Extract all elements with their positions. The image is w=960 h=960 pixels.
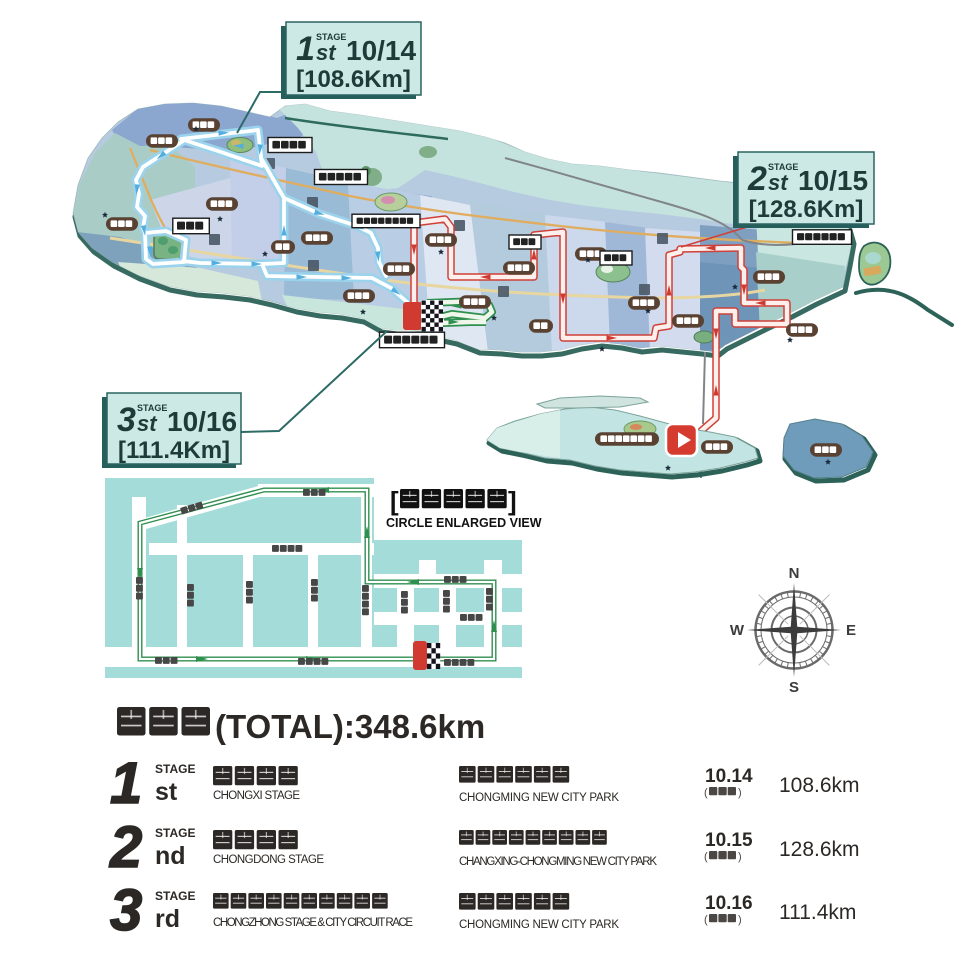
svg-text:10/14: 10/14 — [346, 35, 416, 66]
svg-text:nd: nd — [155, 842, 186, 870]
svg-text:10/16: 10/16 — [167, 406, 237, 437]
svg-text:2: 2 — [747, 160, 767, 198]
svg-text:108.6km: 108.6km — [779, 774, 860, 797]
svg-text:CHONGMING NEW CITY PARK: CHONGMING NEW CITY PARK — [459, 792, 619, 804]
svg-text:[111.4Km]: [111.4Km] — [118, 437, 230, 464]
svg-text:10/15: 10/15 — [798, 165, 868, 196]
svg-text:]: ] — [508, 486, 517, 516]
svg-text:[: [ — [390, 486, 399, 516]
svg-text:): ) — [738, 851, 742, 863]
svg-text:STAGE: STAGE — [155, 826, 195, 840]
svg-text:3: 3 — [117, 401, 136, 439]
svg-text:st: st — [316, 40, 337, 65]
svg-text:CHONGMING NEW CITY PARK: CHONGMING NEW CITY PARK — [459, 919, 619, 931]
svg-text:1: 1 — [296, 30, 315, 68]
svg-text:st: st — [155, 778, 178, 806]
svg-text:10.15: 10.15 — [705, 830, 753, 851]
svg-text:STAGE: STAGE — [155, 762, 195, 776]
svg-text:[128.6Km]: [128.6Km] — [749, 196, 864, 223]
svg-text:rd: rd — [155, 905, 180, 933]
svg-text:st: st — [768, 170, 789, 195]
svg-text:CHANGXING-CHONGMING NEW CITY P: CHANGXING-CHONGMING NEW CITY PARK — [459, 856, 657, 868]
svg-text:1: 1 — [110, 751, 142, 816]
svg-text:CHONGZHONG STAGE & CITY CIRCUI: CHONGZHONG STAGE & CITY CIRCUIT RACE — [213, 917, 413, 929]
svg-text:st: st — [137, 411, 158, 436]
svg-text:S: S — [789, 679, 799, 696]
svg-text:128.6km: 128.6km — [779, 838, 860, 861]
svg-text:E: E — [846, 622, 856, 639]
svg-text:(: ( — [704, 851, 708, 863]
svg-text:): ) — [738, 914, 742, 926]
svg-text:111.4km: 111.4km — [779, 901, 856, 924]
svg-text:CIRCLE ENLARGED VIEW: CIRCLE ENLARGED VIEW — [386, 516, 542, 530]
svg-text:STAGE: STAGE — [155, 889, 195, 903]
svg-text:2: 2 — [109, 815, 142, 880]
svg-text:W: W — [730, 622, 745, 639]
svg-text:3: 3 — [110, 878, 142, 943]
svg-text:): ) — [738, 787, 742, 799]
svg-text:(: ( — [704, 787, 708, 799]
svg-text:[108.6Km]: [108.6Km] — [296, 66, 411, 93]
svg-text:CHONGDONG STAGE: CHONGDONG STAGE — [213, 854, 324, 866]
svg-text:10.14: 10.14 — [705, 766, 753, 787]
svg-text:CHONGXI STAGE: CHONGXI STAGE — [213, 790, 300, 802]
svg-text:N: N — [789, 565, 800, 582]
svg-text:10.16: 10.16 — [705, 893, 753, 914]
svg-text:(: ( — [704, 914, 708, 926]
svg-text:(TOTAL):348.6km: (TOTAL):348.6km — [215, 708, 485, 745]
